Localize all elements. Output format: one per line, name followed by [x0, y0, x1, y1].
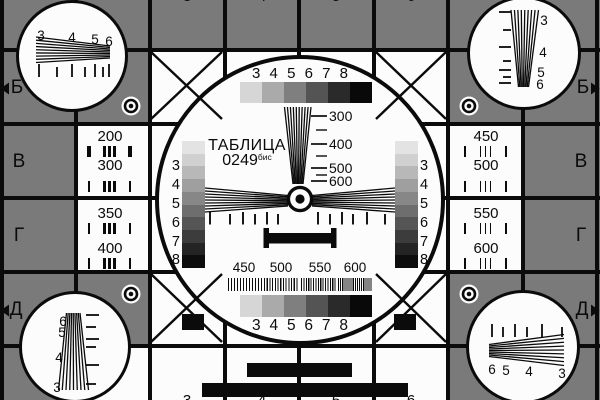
row-letter-left-v: В	[10, 151, 28, 171]
left-panel-ticks	[87, 223, 133, 234]
grid-line-vertical	[595, 0, 599, 400]
grayscale-digits-bottom: 345678	[252, 318, 348, 334]
grayscale-bar-bottom-step	[306, 295, 328, 317]
right-panel-ticks-mark	[480, 223, 482, 234]
staircase-right-step	[395, 243, 418, 256]
staircase-right-step	[395, 255, 418, 268]
edge-digit-top: 5	[328, 0, 344, 6]
grayscale-bar-top-step	[306, 82, 328, 103]
left-panel-ticks-mark	[129, 223, 131, 234]
edge-digit-bottom-glyph: 5	[328, 395, 344, 400]
staircase-left-step	[182, 243, 205, 256]
burst-segment	[264, 278, 299, 291]
right-panel-ticks-mark	[480, 146, 482, 157]
staircase-right-step	[395, 217, 418, 230]
target-icon	[125, 288, 137, 300]
left-panel-ticks-mark	[108, 146, 111, 157]
grayscale-digits-bottom-digit: 8	[339, 317, 348, 335]
left-panel-ticks-mark	[88, 181, 90, 192]
right-panel-ticks-mark	[505, 223, 507, 234]
right-panel-ticks-mark	[490, 258, 492, 269]
grayscale-digits-top-digit: 4	[270, 65, 278, 82]
row-letter-left-b: Б	[8, 77, 26, 97]
right-panel-ticks-mark	[505, 146, 507, 157]
row-letter-right-v: В	[572, 151, 590, 171]
freq-wedge-label: 400	[329, 137, 369, 151]
burst-label: 500	[260, 261, 302, 275]
staircase-left-step	[182, 192, 205, 205]
target-icon	[129, 292, 134, 297]
staircase-digit-left: 7	[164, 234, 180, 250]
staircase-right-step	[395, 205, 418, 218]
grayscale-bar-top-step	[284, 82, 306, 103]
grayscale-bar-bottom	[240, 295, 372, 317]
staircase-left-step	[182, 205, 205, 218]
edge-digit-top: 6	[403, 0, 419, 6]
grayscale-digits-bottom-digit: 5	[287, 317, 296, 335]
corner-circle-top-right	[467, 0, 581, 110]
burst-segment	[228, 278, 262, 291]
staircase-digit-left: 8	[164, 252, 180, 268]
left-panel-label: 350	[83, 206, 137, 221]
edge-digit-bottom: 6	[403, 395, 419, 400]
left-panel-ticks-mark	[103, 223, 105, 234]
right-panel-ticks	[463, 223, 509, 234]
target-icon	[467, 104, 472, 109]
left-panel-ticks-mark	[108, 181, 110, 192]
corner-circle-bottom-left	[19, 291, 131, 400]
staircase-left-step	[182, 141, 205, 154]
target-icon	[460, 285, 479, 304]
left-panel-ticks	[87, 258, 133, 269]
row-letter-left-d: Д	[7, 299, 25, 319]
right-panel-ticks-mark	[490, 146, 492, 157]
edge-digit-top-glyph: 4	[254, 0, 270, 5]
staircase-digit-right: 6	[420, 215, 436, 231]
grayscale-digits-bottom-digit: 7	[322, 317, 331, 335]
staircase-left-step	[182, 255, 205, 268]
grayscale-bar-top	[240, 82, 372, 103]
staircase-right-step	[395, 141, 418, 154]
burst-segment	[301, 278, 336, 291]
left-panel-ticks-mark	[103, 146, 106, 157]
edge-digit-top: 3	[179, 0, 195, 6]
target-icon	[467, 292, 472, 297]
burst-label: 450	[223, 261, 265, 275]
row-letter-right-b: Б	[574, 77, 592, 97]
right-panel-ticks-mark	[485, 181, 487, 192]
corner-circle-bottom-right	[466, 290, 580, 400]
left-panel-ticks-mark	[129, 258, 131, 269]
tv-test-card: ТАБЛИЦА 0249бис Б В Г Д Б В Г Д 34563456…	[0, 0, 600, 400]
grayscale-bar-bottom-step	[350, 295, 372, 317]
target-icon	[125, 100, 137, 112]
left-panel-ticks-mark	[88, 258, 90, 269]
bottom-bar-lower	[202, 383, 408, 397]
grayscale-bar-bottom-step	[240, 295, 262, 317]
grayscale-bar-top-step	[240, 82, 262, 103]
edge-digit-bottom: 5	[328, 395, 344, 400]
right-panel-ticks-mark	[485, 146, 487, 157]
freq-wedge-label: 600	[329, 174, 369, 188]
grayscale-digits-top-digit: 7	[322, 65, 330, 82]
edge-digit-bottom: 3	[179, 395, 195, 400]
staircase-left-step	[182, 166, 205, 179]
staircase-left-step	[182, 217, 205, 230]
right-panel-ticks-mark	[480, 258, 482, 269]
left-panel-ticks-mark	[113, 146, 116, 157]
row-letter-left-g: Г	[10, 225, 28, 245]
staircase-left-step	[182, 154, 205, 167]
left-panel-ticks	[87, 146, 133, 157]
right-panel-label: 500	[459, 158, 513, 173]
staircase-digit-right: 5	[420, 196, 436, 212]
left-panel-label: 200	[83, 129, 137, 144]
staircase-digit-right: 3	[420, 158, 436, 174]
bottom-bar-upper	[247, 363, 352, 377]
ident-square-right	[394, 314, 416, 330]
grayscale-digits-top-digit: 3	[252, 65, 260, 82]
right-panel-ticks	[463, 258, 509, 269]
target-icon	[460, 97, 479, 116]
left-panel-ticks-mark	[88, 223, 90, 234]
grayscale-bar-top-step	[262, 82, 284, 103]
grayscale-digits-bottom-digit: 6	[304, 317, 313, 335]
left-panel-ticks-mark	[113, 181, 115, 192]
left-panel-ticks-mark	[108, 258, 110, 269]
staircase-right-step	[395, 166, 418, 179]
target-icon	[122, 285, 141, 304]
right-panel-ticks-mark	[464, 181, 466, 192]
staircase-right-step	[395, 230, 418, 243]
grid-line-vertical	[446, 0, 450, 400]
staircase-left-step	[182, 230, 205, 243]
burst-segment	[338, 278, 372, 291]
grayscale-digits-top-digit: 5	[287, 65, 295, 82]
left-panel-ticks-mark	[103, 258, 105, 269]
burst-label: 600	[334, 261, 376, 275]
grayscale-bar-bottom-step	[284, 295, 306, 317]
right-panel-ticks-mark	[464, 258, 466, 269]
staircase-left	[182, 141, 205, 268]
grayscale-digits-top-digit: 8	[340, 65, 348, 82]
left-panel-ticks-mark	[128, 146, 131, 157]
right-panel-ticks	[463, 146, 509, 157]
grid-line-vertical	[0, 0, 4, 400]
staircase-right-step	[395, 192, 418, 205]
grid-line-vertical	[148, 0, 152, 400]
left-panel-ticks-mark	[108, 223, 110, 234]
right-panel-ticks-mark	[505, 181, 507, 192]
edge-digit-bottom-glyph: 4	[254, 395, 270, 400]
right-panel-label: 550	[459, 206, 513, 221]
left-panel-label: 300	[83, 158, 137, 173]
grayscale-digits-top: 345678	[252, 66, 348, 80]
edge-digit-top-glyph: 6	[403, 0, 419, 5]
left-panel-ticks-mark	[103, 181, 105, 192]
ident-square-left	[182, 314, 204, 330]
grayscale-digits-top-digit: 6	[305, 65, 313, 82]
edge-digit-bottom: 4	[254, 395, 270, 400]
target-icon	[129, 104, 134, 109]
staircase-right	[395, 141, 418, 268]
staircase-digit-left: 6	[164, 215, 180, 231]
grayscale-bar-bottom-step	[328, 295, 350, 317]
right-panel-label: 450	[459, 129, 513, 144]
left-panel-label: 400	[83, 241, 137, 256]
card-code-suffix: бис	[258, 153, 272, 162]
staircase-right-step	[395, 179, 418, 192]
edge-digit-bottom-glyph: 6	[403, 395, 419, 400]
left-panel-ticks-mark	[113, 223, 115, 234]
edge-digit-top: 4	[254, 0, 270, 6]
staircase-left-step	[182, 179, 205, 192]
grayscale-digits-bottom-digit: 4	[269, 317, 278, 335]
right-panel-ticks-mark	[485, 223, 487, 234]
card-code-number: 0249	[222, 153, 258, 169]
right-panel-ticks-mark	[464, 146, 466, 157]
target-icon	[463, 100, 475, 112]
right-panel-ticks-mark	[480, 181, 482, 192]
staircase-digit-right: 4	[420, 177, 436, 193]
staircase-digit-right: 7	[420, 234, 436, 250]
corner-circle-top-left	[16, 0, 128, 112]
grayscale-bar-bottom-step	[262, 295, 284, 317]
target-icon	[122, 97, 141, 116]
left-panel-ticks-mark	[87, 146, 90, 157]
freq-wedge-label: 300	[329, 109, 369, 123]
grayscale-bar-top-step	[350, 82, 372, 103]
right-panel-ticks-mark	[490, 181, 492, 192]
target-icon	[463, 288, 475, 300]
row-letter-right-d: Д	[573, 299, 591, 319]
right-panel-ticks	[463, 181, 509, 192]
row-letter-right-g: Г	[572, 225, 590, 245]
right-panel-ticks-mark	[464, 223, 466, 234]
staircase-digit-left: 4	[164, 177, 180, 193]
staircase-right-step	[395, 154, 418, 167]
left-panel-ticks	[87, 181, 133, 192]
staircase-digit-left: 5	[164, 196, 180, 212]
edge-digit-top-glyph: 3	[179, 0, 195, 5]
card-code: 0249бис	[207, 152, 287, 170]
grayscale-bar-top-step	[328, 82, 350, 103]
right-panel-ticks-mark	[490, 223, 492, 234]
right-panel-ticks-mark	[485, 258, 487, 269]
staircase-digit-left: 3	[164, 158, 180, 174]
left-panel-ticks-mark	[113, 258, 115, 269]
right-panel-ticks-mark	[505, 258, 507, 269]
right-panel-label: 600	[459, 241, 513, 256]
staircase-digit-right: 8	[420, 252, 436, 268]
grayscale-digits-bottom-digit: 3	[252, 317, 261, 335]
edge-digit-top-glyph: 5	[328, 0, 344, 5]
edge-digit-bottom-glyph: 3	[179, 395, 195, 400]
left-panel-ticks-mark	[129, 181, 131, 192]
